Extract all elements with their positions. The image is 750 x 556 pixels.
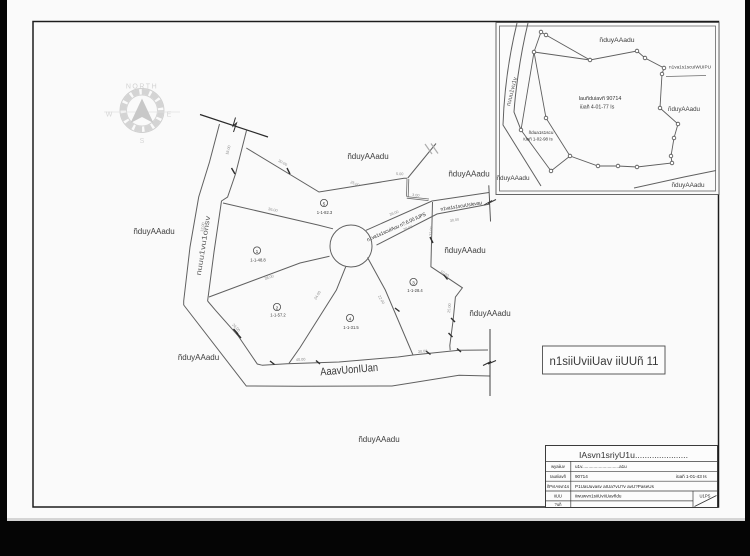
svg-text:1: 1 (256, 249, 259, 255)
svg-text:S: S (140, 138, 145, 145)
svg-text:ñPvIAsvn1s: ñPvIAsvn1s (547, 484, 569, 489)
svg-text:?uñ: ?uñ (555, 502, 563, 507)
svg-text:ñduyAAadu: ñduyAAadu (496, 175, 529, 182)
svg-text:1-1-28.4: 1-1-28.4 (407, 288, 423, 294)
svg-text:ñduyAAadu: ñduyAAadu (671, 182, 704, 189)
svg-text:iiUU: iiUU (554, 494, 562, 499)
svg-text:ñduyAAadu: ñduyAAadu (668, 106, 701, 113)
svg-text:P1UaUuvasv aIUa?vU?v avU?Pa: P1UaUuvasv aIUa?vU?v avU?PaseUs (575, 484, 655, 489)
svg-text:ñduyAAadu: ñduyAAadu (469, 309, 510, 318)
svg-text:5.00: 5.00 (396, 172, 404, 176)
svg-text:32.00: 32.00 (429, 226, 434, 236)
svg-text:ñduyAAadu: ñduyAAadu (448, 170, 489, 179)
svg-text:iüañ 4-01-77 Is: iüañ 4-01-77 Is (580, 105, 615, 111)
svg-text:IAsvn1sriyU1u.................: IAsvn1sriyU1u...................... (579, 450, 688, 460)
svg-text:ñduyAAadu: ñduyAAadu (599, 37, 634, 44)
svg-text:1-1-82.3: 1-1-82.3 (317, 210, 333, 216)
svg-text:W: W (106, 112, 113, 119)
svg-text:iüañ 1-02-98 Is: iüañ 1-02-98 Is (523, 137, 553, 142)
svg-text:ñduyAAadu: ñduyAAadu (178, 353, 219, 362)
svg-text:E: E (167, 112, 172, 119)
svg-text:Iauñduiavñ 90714: Iauñduiavñ 90714 (579, 96, 622, 102)
svg-text:NORTH: NORTH (126, 84, 158, 91)
svg-text:4: 4 (349, 316, 352, 322)
svg-text:30.00: 30.00 (418, 349, 428, 354)
svg-text:ñduyAAadu: ñduyAAadu (133, 227, 174, 236)
svg-text:ñdua1s1scu: ñdua1s1scu (529, 130, 554, 135)
svg-text:wyaiiuv: wyaiiuv (551, 464, 566, 469)
svg-text:2: 2 (276, 305, 279, 311)
svg-text:90714: 90714 (575, 474, 588, 479)
svg-text:n1siiUviiUav iiUUñ 11: n1siiUviiUav iiUUñ 11 (550, 356, 659, 368)
svg-text:3: 3 (412, 280, 415, 286)
svg-text:iüañ 1-01-43 Is: iüañ 1-01-43 Is (676, 474, 707, 479)
svg-text:5: 5 (323, 201, 326, 207)
svg-text:1-1-48.8: 1-1-48.8 (250, 258, 266, 264)
svg-text:n1va1s1scuIWUIPU: n1va1s1scuIWUIPU (669, 65, 711, 70)
svg-text:3.00: 3.00 (412, 193, 420, 198)
svg-text:1-1-31.5: 1-1-31.5 (343, 325, 359, 331)
svg-text:u1v...........................: u1v.............................a1u (575, 464, 627, 469)
svg-text:iiwuwvn1siiUviiUavñdu: iiwuwvn1siiUviiUavñdu (575, 494, 622, 499)
svg-text:ñduyAAadu: ñduyAAadu (347, 152, 388, 161)
svg-text:ñduyAAadu: ñduyAAadu (444, 246, 485, 255)
svg-text:ñduyAAadu: ñduyAAadu (358, 435, 399, 444)
svg-text:U1PS: U1PS (700, 494, 711, 499)
svg-text:40.00: 40.00 (296, 358, 306, 362)
svg-text:Iauriiavñ: Iauriiavñ (550, 474, 566, 479)
svg-text:1-1-57.2: 1-1-57.2 (270, 313, 286, 319)
